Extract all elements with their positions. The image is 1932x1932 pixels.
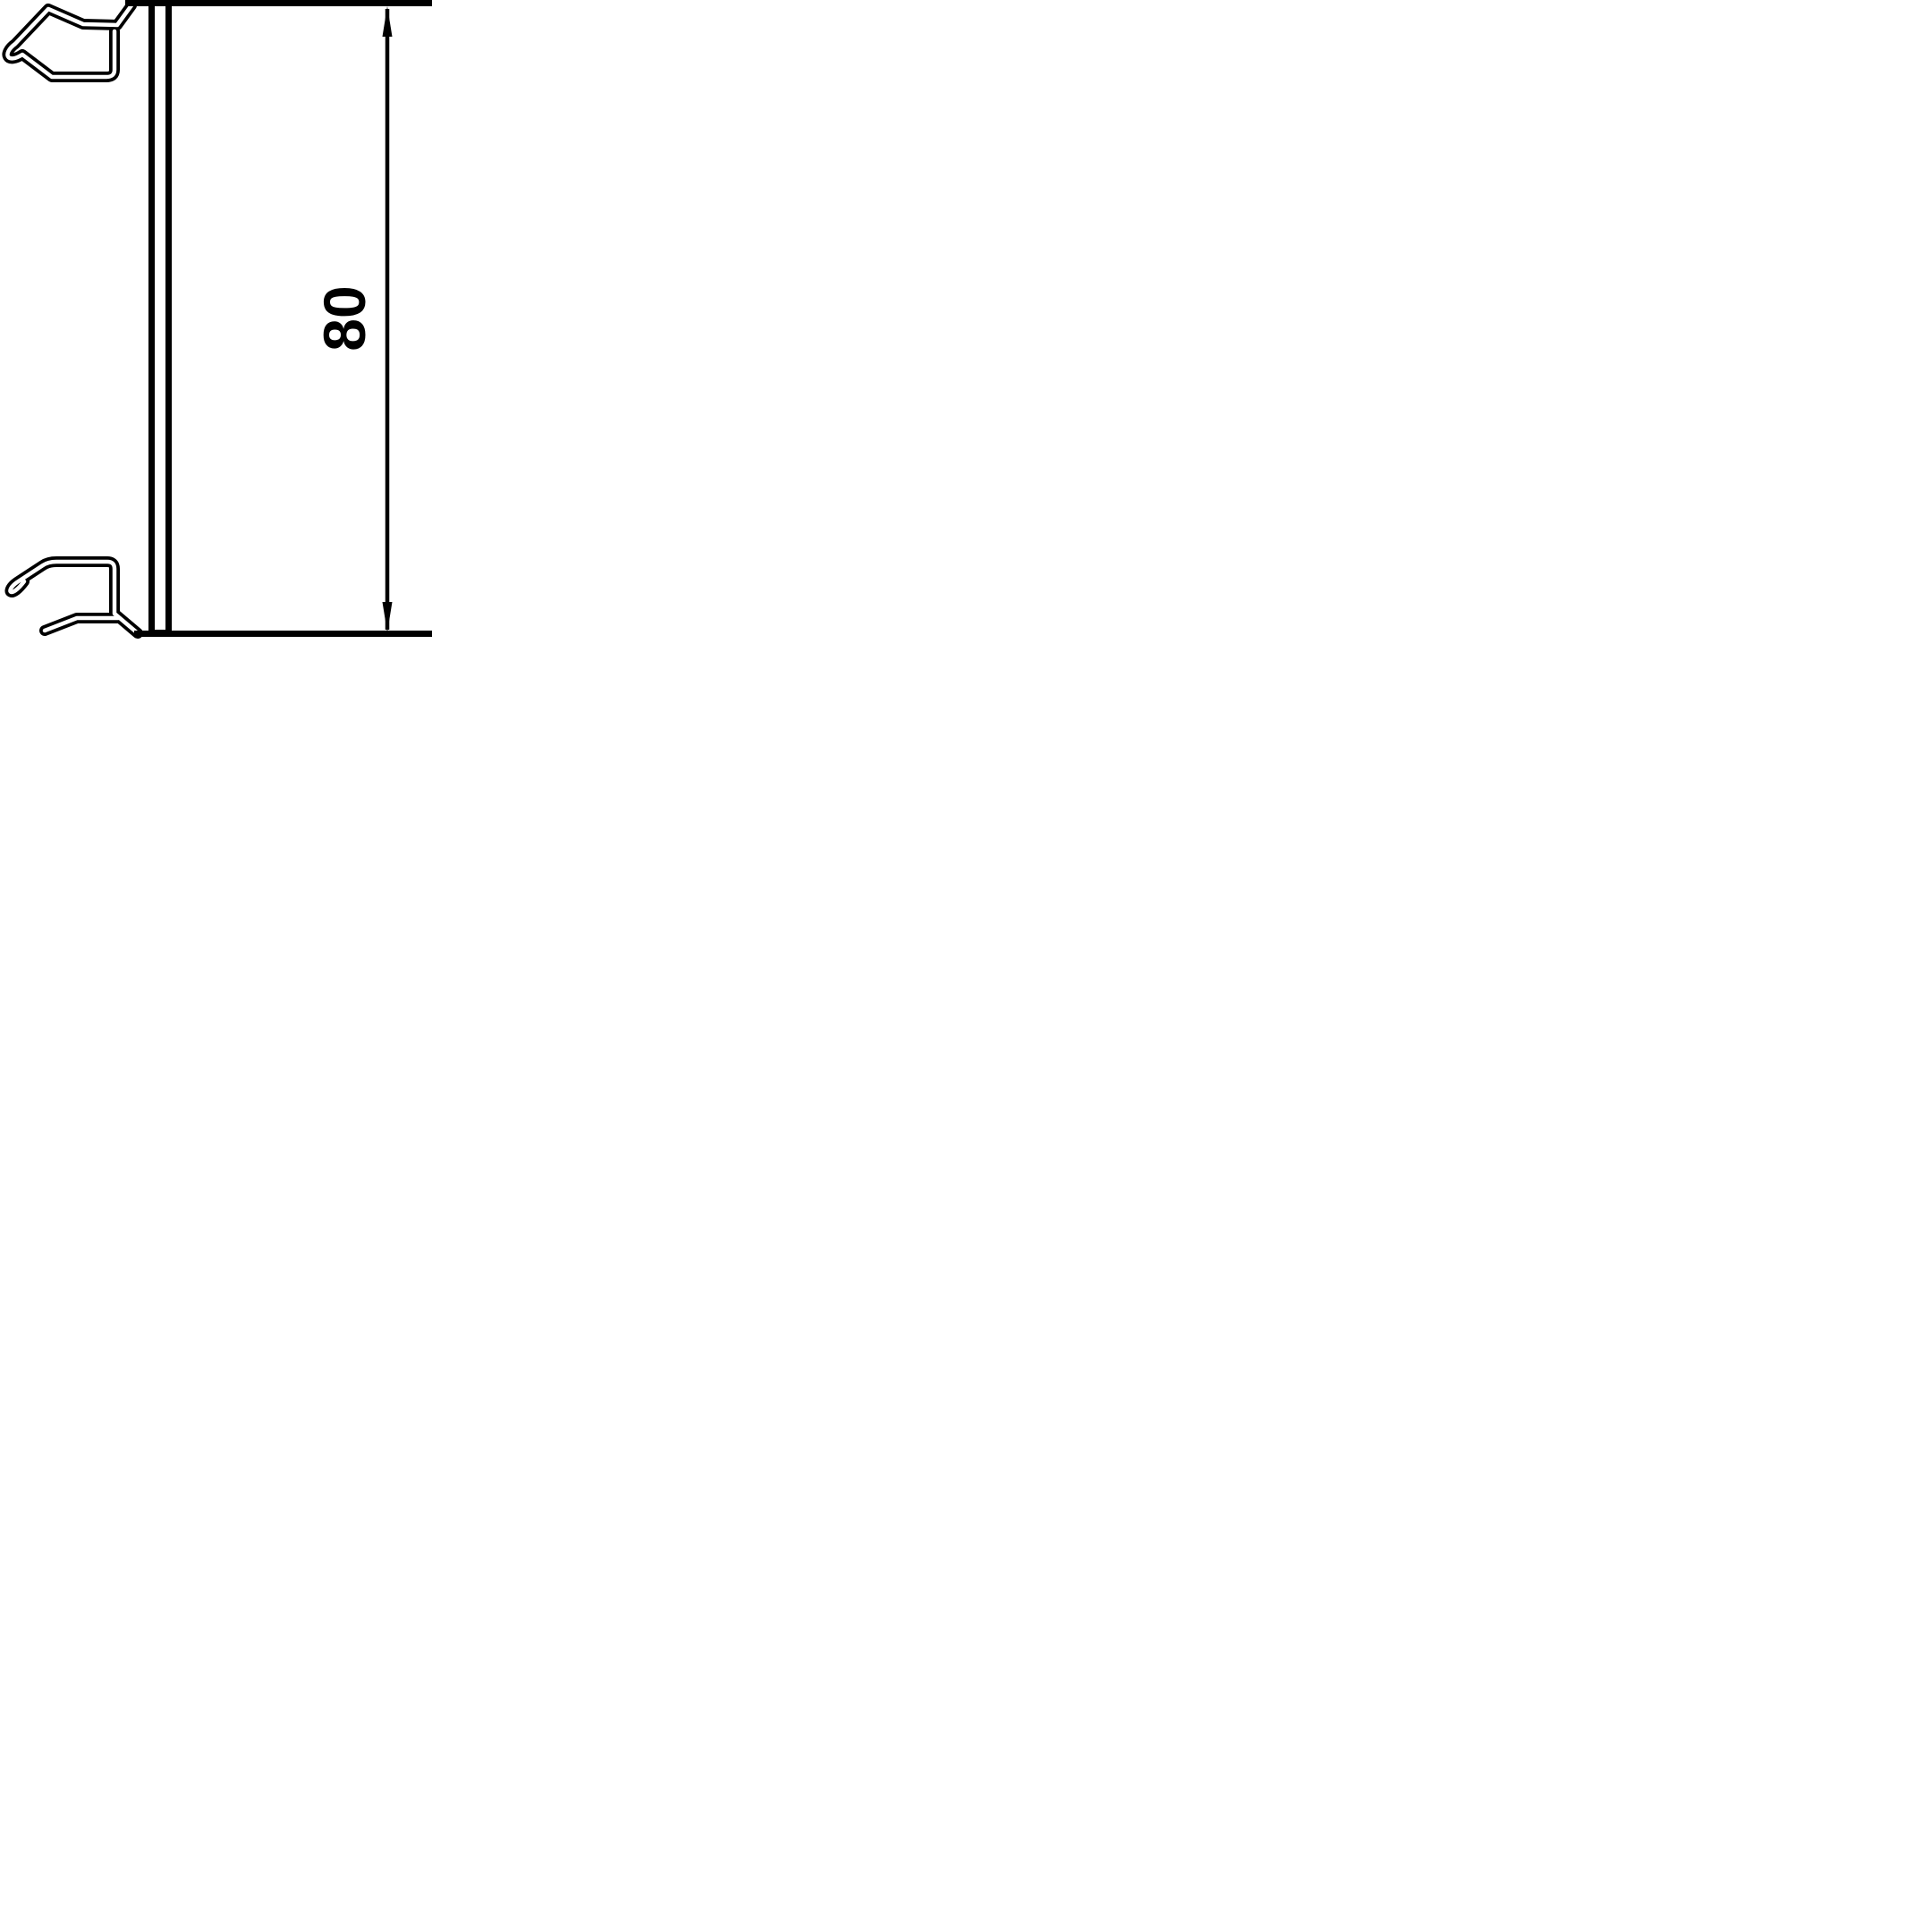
drawing-canvas: 80	[0, 0, 1932, 1932]
dimension-arrow-down-icon	[383, 602, 393, 632]
technical-drawing: 80	[0, 0, 1932, 1932]
top-clip-core	[7, 5, 131, 77]
dimension-arrow-up-icon	[383, 6, 393, 37]
dimension-label: 80	[311, 285, 377, 351]
